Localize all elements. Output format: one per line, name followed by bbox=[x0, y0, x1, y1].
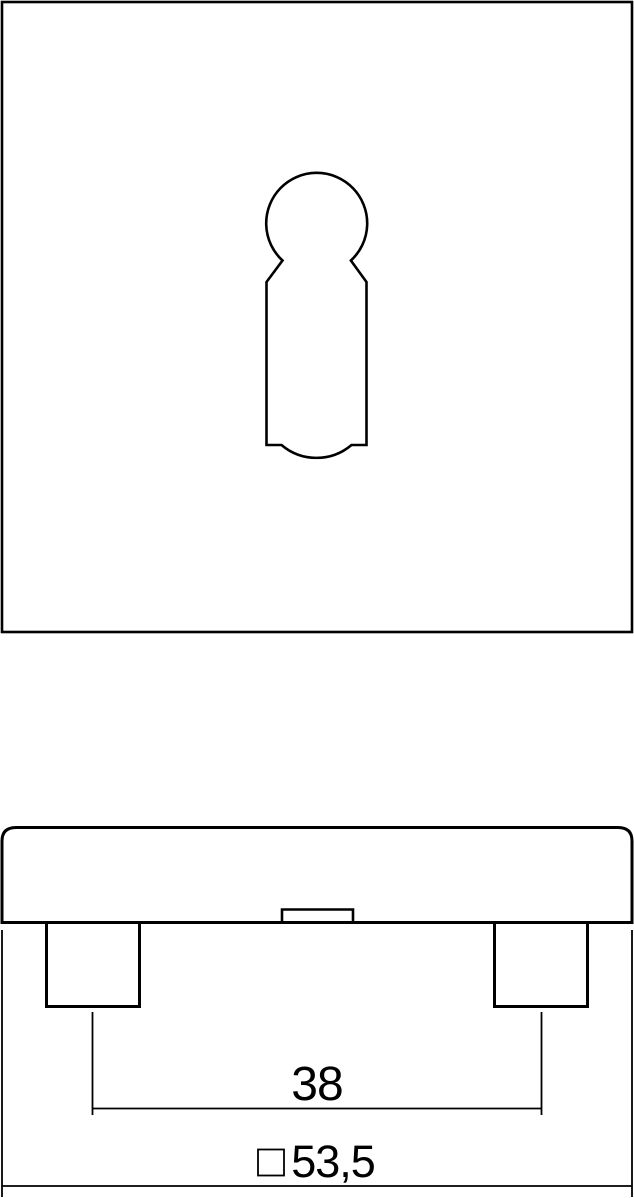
left-mounting-post bbox=[47, 923, 140, 1007]
dimension-post-spacing: 38 bbox=[93, 1012, 542, 1115]
square-symbol-icon bbox=[258, 1150, 284, 1176]
technical-drawing-canvas: 38 53,5 bbox=[0, 0, 634, 1198]
keyhole-cutout bbox=[266, 173, 367, 458]
dimension-label-38: 38 bbox=[291, 1058, 342, 1111]
front-view bbox=[2, 2, 632, 632]
side-view bbox=[2, 828, 632, 1007]
spindle-tab bbox=[282, 910, 353, 923]
right-mounting-post bbox=[495, 923, 588, 1007]
escutcheon-drawing-svg: 38 53,5 bbox=[0, 0, 634, 1198]
dimension-label-53-5: 53,5 bbox=[291, 1136, 375, 1187]
front-view-plate-outline bbox=[2, 2, 632, 632]
